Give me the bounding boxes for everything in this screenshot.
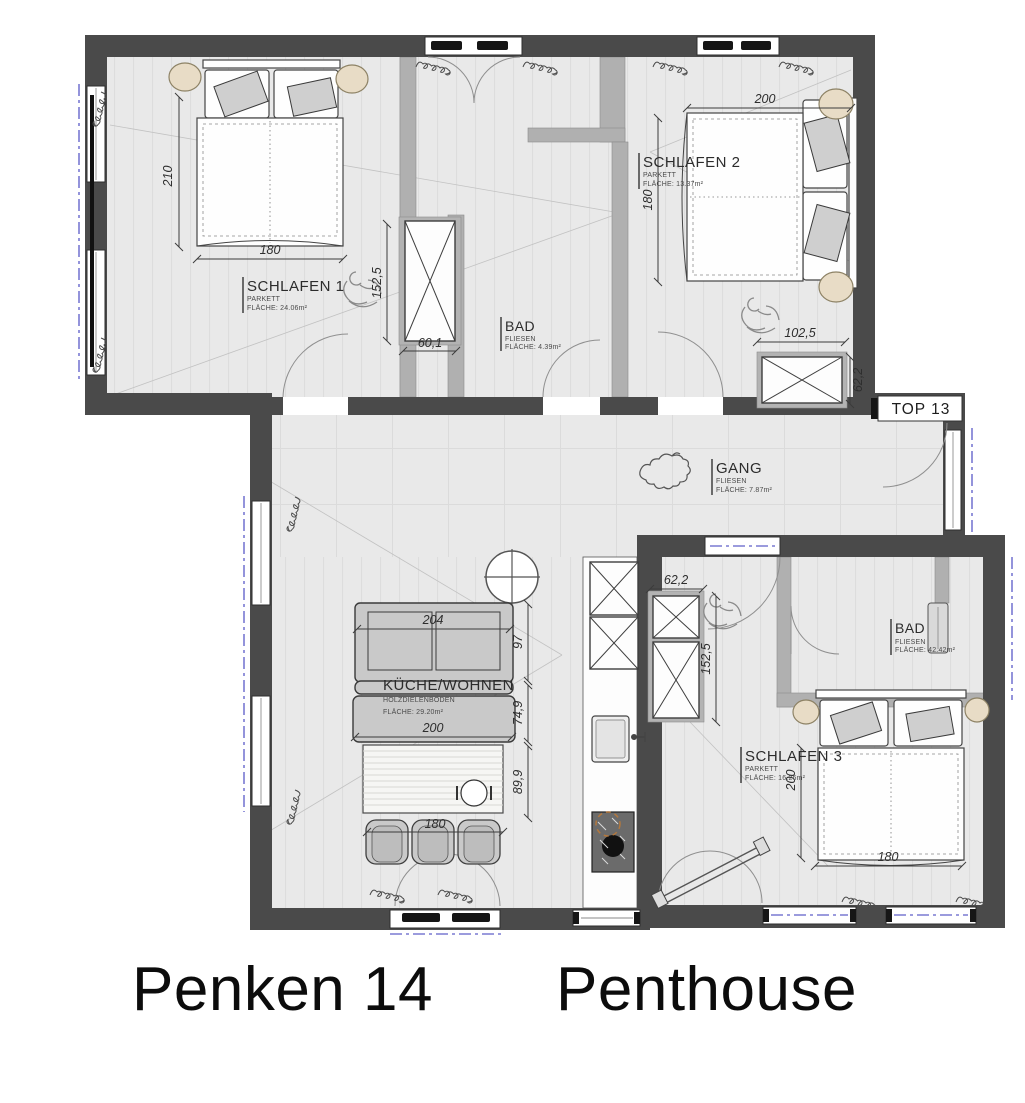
floor-plan: 210 180 60,1 152,5 200 180 102,5 62,2 62	[0, 0, 1025, 1103]
bedside-lamp-icon	[336, 65, 368, 93]
dim-label: 180	[425, 817, 446, 831]
room-name: BAD	[895, 620, 925, 636]
room-floor: PARKETT	[745, 766, 779, 773]
dining-table-symbol	[363, 745, 503, 813]
room-area: FLÄCHE: 4.39m²	[505, 343, 562, 351]
bedside-lamp-icon	[793, 700, 819, 724]
room-name: BAD	[505, 318, 535, 334]
door-leaf-icon	[703, 41, 733, 50]
door-leaf-icon	[477, 41, 508, 50]
dim-label: 97	[511, 634, 525, 649]
dim-label: 152,5	[699, 643, 713, 674]
dim-label: 152,5	[370, 267, 384, 298]
kitchen-tall-cabinets-symbol	[590, 562, 638, 669]
title-unit: Penthouse	[556, 955, 857, 1024]
stove-symbol	[592, 812, 634, 872]
door-leaf-icon	[402, 913, 440, 922]
bedside-lamp-icon	[819, 89, 853, 119]
bedside-lamp-icon	[169, 63, 201, 91]
dim-label: 89,9	[511, 770, 525, 794]
dim-label: 102,5	[784, 326, 815, 340]
wardrobe-symbol	[399, 217, 461, 345]
dim-label: 200	[422, 721, 444, 735]
room-floor: PARKETT	[643, 172, 677, 179]
room-floor: PARKETT	[247, 296, 281, 303]
room-name: SCHLAFEN 3	[745, 748, 843, 765]
room-floor: FLIESEN	[895, 639, 926, 646]
plate-symbol	[461, 780, 487, 806]
room-floor: FLIESEN	[505, 336, 536, 343]
room-name: SCHLAFEN 1	[247, 278, 345, 295]
bedside-lamp-icon	[965, 698, 989, 722]
unit-entry-top13: TOP 13	[871, 396, 962, 421]
bed-2-symbol	[682, 89, 857, 302]
door-leaf-icon	[452, 913, 490, 922]
unit-badge: TOP 13	[892, 401, 951, 418]
dim-label: 180	[641, 190, 655, 211]
room-area: FLÄCHE: 29.20m²	[383, 708, 444, 716]
room-name: GANG	[716, 460, 762, 477]
dim-label: 60,1	[418, 336, 442, 350]
dresser-schlafen2-symbol	[757, 352, 847, 408]
room-area: FLÄCHE: 42.42m²	[895, 646, 956, 654]
room-name: SCHLAFEN 2	[643, 154, 741, 171]
dim-label: 62,2	[664, 573, 688, 587]
room-area: FLÄCHE: 13.37m²	[643, 180, 704, 188]
room-area: FLÄCHE: 16.26m²	[745, 774, 806, 782]
title-project: Penken 14	[132, 955, 433, 1024]
dim-label: 180	[260, 243, 281, 257]
dim-label: 204	[422, 613, 444, 627]
dim-label: 74,9	[511, 701, 525, 725]
door-leaf-icon	[741, 41, 771, 50]
dim-label: 180	[878, 850, 899, 864]
plan-title: Penken 14 Penthouse	[132, 955, 857, 1024]
shaft-cabinets-symbol	[648, 591, 704, 722]
room-name: KÜCHE/WOHNEN	[383, 676, 514, 694]
dim-label: 62,2	[851, 368, 865, 392]
washbasin-symbol	[928, 603, 948, 653]
dim-label: 200	[754, 92, 776, 106]
room-floor: HOLZDIELENBODEN	[383, 697, 455, 704]
room-floor: FLIESEN	[716, 478, 747, 485]
dim-label: 210	[161, 166, 175, 188]
room-area: FLÄCHE: 24.06m²	[247, 304, 308, 312]
room-area: FLÄCHE: 7.87m²	[716, 486, 773, 494]
door-leaf-icon	[431, 41, 462, 50]
bedside-lamp-icon	[819, 272, 853, 302]
curtain-rail	[90, 95, 94, 367]
